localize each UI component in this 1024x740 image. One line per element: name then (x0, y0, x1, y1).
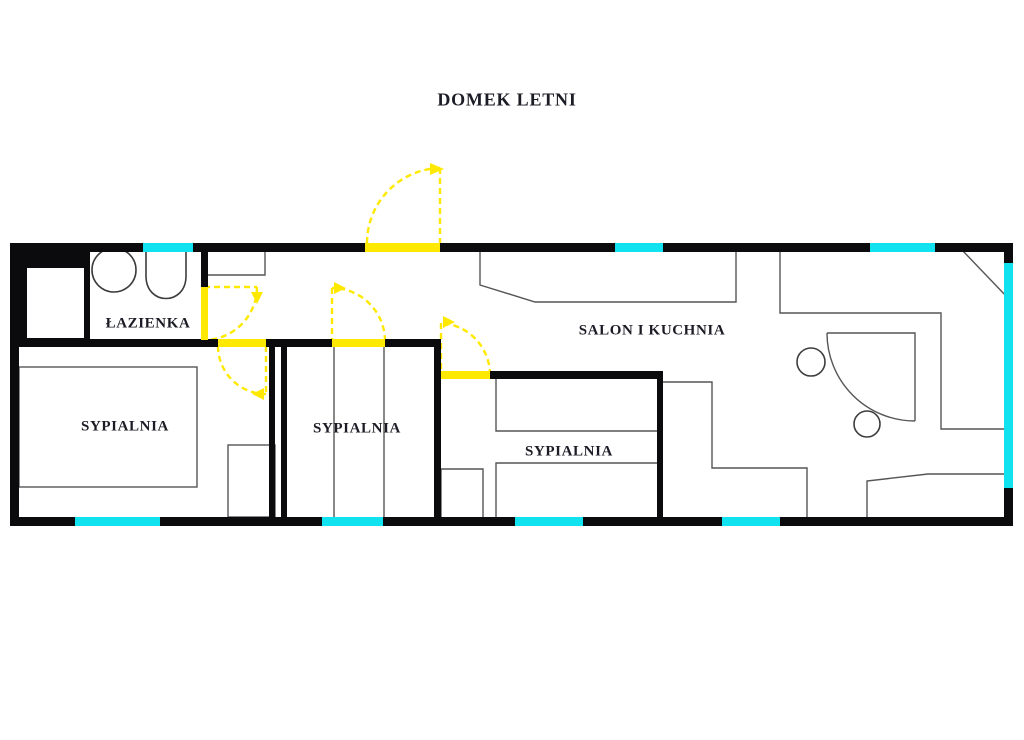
floor-plan: DOMEK LETNI (0, 0, 1024, 740)
door-middle-bedroom (332, 339, 385, 347)
bed-right-bedroom-bottom (496, 463, 657, 517)
toilet-icon (146, 250, 186, 299)
wall-corridor-right (385, 339, 441, 347)
plan-canvas (0, 0, 1024, 740)
entrance-door-arrow-icon (430, 163, 444, 175)
window-middle-bedroom (322, 517, 383, 526)
window-top-right (870, 243, 935, 252)
partition-line (780, 252, 1008, 429)
room-label-living-kitchen: SALON I KUCHNIA (579, 323, 726, 340)
bench-bottom-right (867, 474, 1008, 517)
wall-right-bedroom-right (657, 371, 663, 517)
wall-middle-bedroom-left (281, 339, 287, 517)
bed-right-bedroom-top (496, 379, 657, 431)
door-entrance (365, 243, 440, 252)
wall-middle-bedroom-right (434, 339, 441, 517)
cabinet-right-bedroom (441, 469, 483, 517)
door-bathroom (201, 287, 208, 340)
window-left-bedroom (75, 517, 160, 526)
right-bedroom-door-arc (441, 323, 490, 375)
room-label-middle-bedroom: SYPIALNIA (313, 421, 401, 438)
hall-shelf (208, 252, 265, 275)
sofa (663, 382, 807, 517)
bathroom-door-arrow-icon (251, 292, 263, 304)
bathroom-sink-icon (92, 248, 136, 292)
window-bottom-living (722, 517, 780, 526)
left-bedroom-door-arrow-icon (252, 388, 264, 400)
window-top-living (615, 243, 663, 252)
room-label-left-bedroom: SYPIALNIA (81, 419, 169, 436)
wall-right-bedroom-top (490, 371, 663, 379)
bathroom-door-arc (204, 287, 257, 340)
sink-basin-right (797, 348, 825, 376)
corner-shelf (962, 250, 1008, 298)
room-label-bathroom: ŁAZIENKA (106, 316, 191, 333)
wall-left-bedroom-right (269, 339, 275, 517)
drain-circle (854, 411, 880, 437)
left-bedroom-door-arc (218, 346, 266, 394)
window-bathroom (143, 243, 193, 252)
window-right-bedroom (515, 517, 583, 526)
entrance-door-arc (367, 168, 440, 243)
middle-bedroom-door-arc (332, 288, 385, 341)
kitchen-counter (480, 252, 736, 302)
nightstand-left-bedroom (228, 445, 275, 517)
bathroom-wall-right (201, 243, 208, 287)
bathroom-shower-tray (27, 268, 84, 338)
window-right-wall (1004, 263, 1013, 488)
wall-bathroom-bottom (10, 339, 218, 347)
middle-bedroom-door-arrow-icon (334, 282, 346, 294)
wall-corridor-mid (266, 339, 332, 347)
door-right-bedroom (441, 371, 490, 379)
room-label-right-bedroom: SYPIALNIA (525, 444, 613, 461)
door-left-bedroom (218, 339, 266, 347)
outer-wall-bottom (10, 517, 1013, 526)
shower-enclosure (827, 333, 915, 421)
shower-curved-door (827, 333, 915, 421)
